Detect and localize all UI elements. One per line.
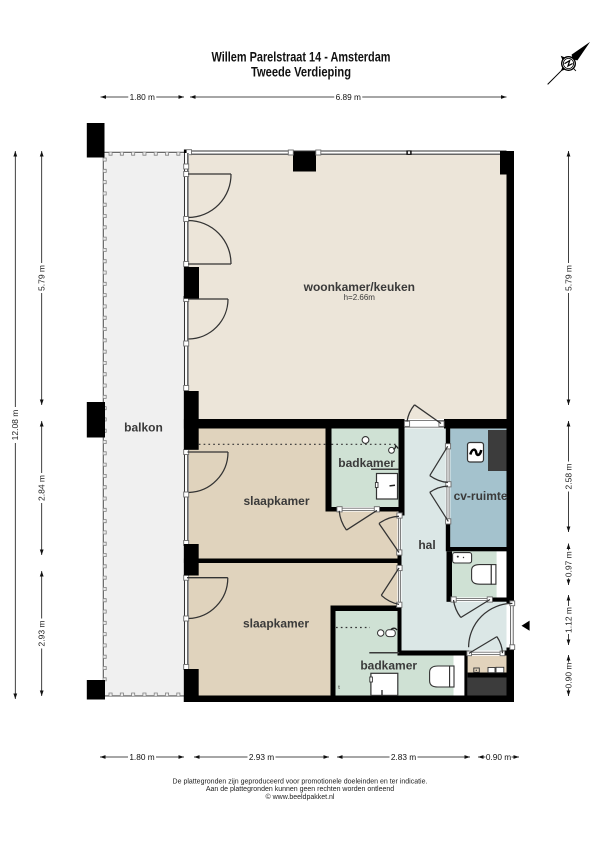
svg-text:2.93 m: 2.93 m bbox=[37, 621, 47, 647]
svg-text:0.97 m: 0.97 m bbox=[563, 551, 573, 577]
svg-text:2.83 m: 2.83 m bbox=[391, 752, 416, 762]
svg-text:1.12 m: 1.12 m bbox=[563, 607, 573, 633]
svg-text:badkamer: badkamer bbox=[338, 456, 395, 470]
svg-text:balkon: balkon bbox=[124, 421, 163, 435]
svg-text:0.90 m: 0.90 m bbox=[486, 752, 511, 762]
svg-text:6.89 m: 6.89 m bbox=[336, 92, 361, 102]
svg-text:12.08 m: 12.08 m bbox=[10, 410, 20, 441]
svg-text:2.84 m: 2.84 m bbox=[37, 475, 47, 501]
svg-text:slaapkamer: slaapkamer bbox=[243, 494, 309, 508]
svg-text:hal: hal bbox=[418, 538, 435, 552]
svg-text:© www.beeldpakket.nl: © www.beeldpakket.nl bbox=[266, 793, 335, 801]
svg-text:1.80 m: 1.80 m bbox=[129, 752, 154, 762]
svg-text:h=2.66m: h=2.66m bbox=[344, 293, 376, 302]
svg-text:Aan de plattegronden kunnen ge: Aan de plattegronden kunnen geen rechten… bbox=[206, 786, 394, 793]
svg-text:badkamer: badkamer bbox=[360, 658, 417, 672]
svg-text:2.93 m: 2.93 m bbox=[249, 752, 274, 762]
svg-text:Willem Parelstraat 14 - Amster: Willem Parelstraat 14 - Amsterdam bbox=[212, 48, 391, 64]
svg-text:2.58 m: 2.58 m bbox=[563, 464, 573, 490]
svg-text:Tweede Verdieping: Tweede Verdieping bbox=[251, 64, 351, 80]
svg-text:5.79 m: 5.79 m bbox=[37, 265, 47, 291]
svg-text:0.90 m: 0.90 m bbox=[563, 663, 573, 689]
svg-text:De plattegronden zijn geproduc: De plattegronden zijn geproduceerd voor … bbox=[173, 779, 428, 786]
svg-text:slaapkamer: slaapkamer bbox=[243, 617, 309, 631]
svg-text:5.79 m: 5.79 m bbox=[563, 265, 573, 291]
svg-text:cv-ruimte: cv-ruimte bbox=[454, 489, 508, 503]
svg-text:1.80 m: 1.80 m bbox=[130, 92, 155, 102]
svg-text:woonkamer/keuken: woonkamer/keuken bbox=[303, 280, 415, 294]
